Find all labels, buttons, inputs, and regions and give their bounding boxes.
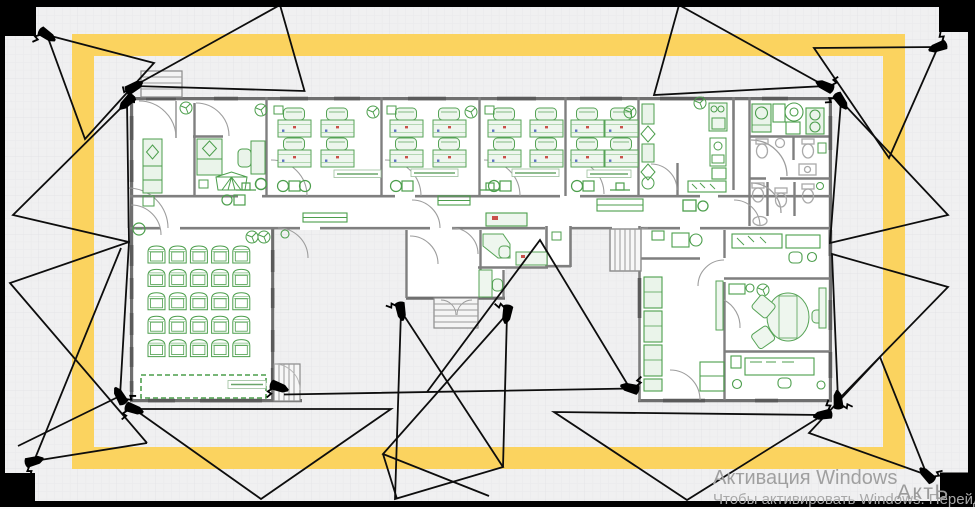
svg-text:Активация Windows: Активация Windows: [713, 467, 897, 489]
svg-text:АктЬ: АктЬ: [897, 481, 950, 504]
